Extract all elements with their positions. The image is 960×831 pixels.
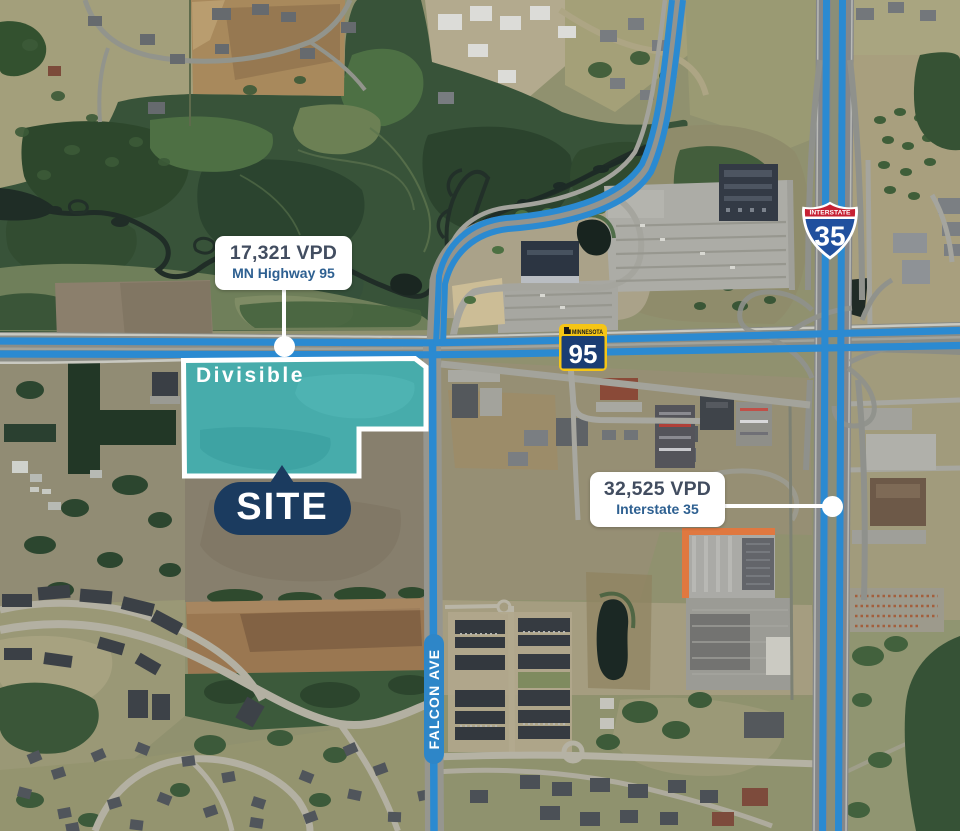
svg-text:35: 35	[814, 221, 845, 252]
svg-text:MINNESOTA: MINNESOTA	[572, 329, 603, 336]
svg-text:95: 95	[569, 339, 598, 369]
svg-text:INTERSTATE: INTERSTATE	[810, 210, 851, 217]
